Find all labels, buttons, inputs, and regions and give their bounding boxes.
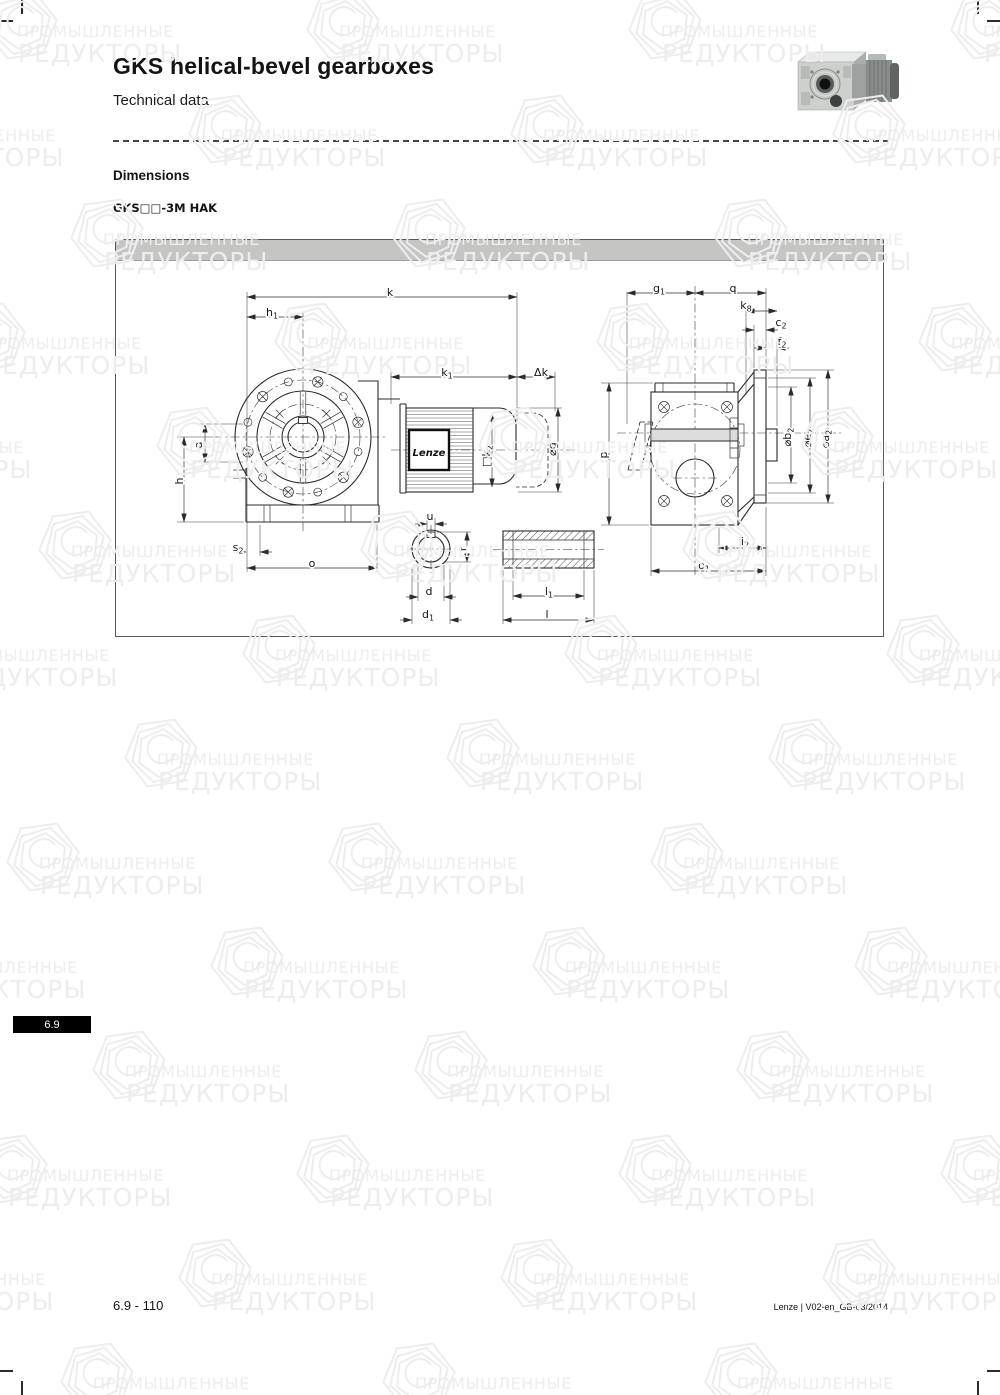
watermark-hexagon-icon [207,915,287,1003]
watermark-line1: ПРОМЫШЛЕННЫЕ [339,24,496,40]
watermark-line1: ПРОМЫШЛЕННЫЕ [415,1376,572,1392]
dim-label-k1: k1 [441,366,452,381]
crop-mark-top-right-h [987,20,1000,22]
foot-slots [264,505,351,522]
watermark-hexagon-icon [121,707,201,795]
watermark-line1: ПРОМЫШЛЕННЫЕ [7,1168,164,1184]
watermark: ПРОМЫШЛЕННЫЕРЕДУКТОРЫ [737,1376,952,1395]
crop-mark-bottom-left-v [21,1381,23,1395]
dim-label-u: u [427,510,434,523]
watermark: ПРОМЫШЛЕННЫЕРЕДУКТОРЫ [651,1168,866,1273]
watermark-line2: РЕДУКТОРЫ [244,977,408,1002]
watermark-line2: РЕДУКТОРЫ [276,665,440,690]
watermark: ПРОМЫШЛЕННЫЕРЕДУКТОРЫ [415,1376,630,1395]
gearbox-rib [801,66,810,79]
dim-label-f2: f2 [778,335,787,350]
watermark: ПРОМЫШЛЕННЫЕРЕДУКТОРЫ [39,856,254,961]
watermark: ПРОМЫШЛЕННЫЕРЕДУКТОРЫ [125,1064,340,1169]
watermark-line1: ПРОМЫШЛЕННЫЕ [243,960,400,976]
shaft-bore [820,79,831,90]
watermark-line2: РЕДУКТОРЫ [684,873,848,898]
watermark: ПРОМЫШЛЕННЫЕРЕДУКТОРЫ [93,1376,308,1395]
watermark: ПРОМЫШЛЕННЫЕРЕДУКТОРЫ [329,1168,544,1273]
watermark-line2: РЕДУКТОРЫ [866,145,1000,170]
watermark-line2: РЕДУКТОРЫ [0,457,32,482]
watermark: ПРОМЫШЛЕННЫЕРЕДУКТОРЫ [479,752,694,857]
watermark-line1: ПРОМЫШЛЕННЫЕ [479,752,636,768]
dim-label-⌀b2: ⌀b2 [781,428,796,447]
watermark-line1: ПРОМЫШЛЕННЫЕ [0,1272,46,1288]
watermark-line2: РЕДУКТОРЫ [770,1081,934,1106]
section-heading: Dimensions [113,168,190,183]
dim-label-Δk: Δk [534,366,549,379]
watermark-hexagon-icon [765,707,845,795]
watermark-line1: ПРОМЫШЛЕННЫЕ [329,1168,486,1184]
watermark-hexagon-icon [3,811,83,899]
dashed-divider [113,140,888,142]
bolt-hole [354,448,362,456]
watermark-line2: РЕДУКТОРЫ [362,873,526,898]
variant-label: GKS□□-3M HAK [113,201,217,215]
crop-mark-bottom-left-h [0,1370,13,1372]
watermark-line2: РЕДУКТОРЫ [534,1289,698,1314]
dim-label-□k2: □k2 [480,445,495,467]
watermark-line1: ПРОМЫШЛЕННЫЕ [855,1272,1000,1288]
dim-label-⌀e2: ⌀e2 [801,429,816,447]
dim-label-i2: i2 [741,535,749,550]
watermark-hexagon-icon [0,291,29,379]
watermark-line2: РЕДУКТОРЫ [222,145,386,170]
watermark: ПРОМЫШЛЕННЫЕРЕДУКТОРЫ [769,1064,984,1169]
fan-cover [473,408,516,484]
watermark-line1: ПРОМЫШЛЕННЫЕ [0,440,24,456]
watermark-hexagon-icon [57,1331,137,1395]
motor-adapter [852,64,866,98]
watermark-line1: ПРОМЫШЛЕННЫЕ [887,960,1000,976]
dim-label-⌀a2: ⌀a2 [819,430,834,448]
watermark-line1: ПРОМЫШЛЕННЫЕ [919,648,1000,664]
section-tab: 6.9 [13,1016,91,1033]
watermark-line2: РЕДУКТОРЫ [158,769,322,794]
footer-doc-code: Lenze | V02-en_GB-03/2014 [774,1302,888,1312]
watermark-line2: РЕДУКТОРЫ [0,977,86,1002]
page-title: GKS helical-bevel gearboxes [113,53,434,80]
dim-label-a: a [192,442,205,449]
watermark: ПРОМЫШЛЕННЫЕРЕДУКТОРЫ [0,1272,104,1377]
product-photo [788,46,906,118]
watermark-line2: РЕДУКТОРЫ [802,769,966,794]
gearbox-rib [843,66,851,78]
dim-label-o1: o1 [698,559,710,574]
watermark: ПРОМЫШЛЕННЫЕРЕДУКТОРЫ [211,1272,426,1377]
watermark-line2: РЕДУКТОРЫ [40,873,204,898]
output-flange-plate [754,370,766,503]
watermark-line2: РЕДУКТОРЫ [920,665,1000,690]
watermark-line2: РЕДУКТОРЫ [952,353,1000,378]
watermark-line1: ПРОМЫШЛЕННЫЕ [93,1376,250,1392]
watermark-line2: РЕДУКТОРЫ [448,1081,612,1106]
crop-mark-bottom-right-h [987,1370,1000,1372]
watermark-line1: ПРОМЫШЛЕННЫЕ [0,648,110,664]
bolt-dot [810,95,813,98]
gearbox-rib [801,92,810,105]
watermark: ПРОМЫШЛЕННЫЕРЕДУКТОРЫ [157,752,372,857]
dim-label-l: l [545,608,548,621]
watermark-hexagon-icon [851,915,931,1003]
watermark: ПРОМЫШЛЕННЫЕРЕДУКТОРЫ [597,648,812,753]
watermark-line1: ПРОМЫШЛЕННЫЕ [651,1168,808,1184]
watermark: ПРОМЫШЛЕННЫЕРЕДУКТОРЫ [0,752,50,857]
watermark-hexagon-icon [915,291,995,379]
watermark: ПРОМЫШЛЕННЫЕРЕДУКТОРЫ [0,1064,18,1169]
watermark-hexagon-icon [497,1227,577,1315]
watermark: ПРОМЫШЛЕННЫЕРЕДУКТОРЫ [973,1168,1000,1273]
watermark: ПРОМЫШЛЕННЫЕРЕДУКТОРЫ [275,648,490,753]
watermark-line1: ПРОМЫШЛЕННЫЕ [0,960,78,976]
dim-label-k8: k8 [740,299,751,314]
watermark-line1: ПРОМЫШЛЕННЫЕ [39,856,196,872]
dim-label-h: h [173,477,186,484]
dim-label-d1: d1 [422,608,434,623]
footer-page-number: 6.9 - 110 [113,1298,163,1313]
centering-spigot [766,429,777,461]
watermark-line1: ПРОМЫШЛЕННЫЕ [565,960,722,976]
watermark-hexagon-icon [175,1227,255,1315]
plug-hole [830,95,842,107]
watermark-line1: ПРОМЫШЛЕННЫЕ [973,1168,1000,1184]
dim-label-s2: s2 [233,541,244,556]
watermark-hexagon-icon [625,0,705,67]
watermark-hexagon-icon [411,1019,491,1107]
motor-brand-label: Lenze [413,448,446,459]
watermark: ПРОМЫШЛЕННЫЕРЕДУКТОРЫ [221,128,436,233]
bolt-dot [836,70,839,73]
crop-mark-top-left-v [21,0,23,14]
watermark-line1: ПРОМЫШЛЕННЫЕ [769,1064,926,1080]
watermark-line2: РЕДУКТОРЫ [598,665,762,690]
watermark: ПРОМЫШЛЕННЫЕРЕДУКТОРЫ [801,752,1000,857]
watermark-line1: ПРОМЫШЛЕННЫЕ [801,752,958,768]
watermark: ПРОМЫШЛЕННЫЕРЕДУКТОРЫ [0,128,114,233]
watermark-line2: РЕДУКТОРЫ [0,1289,54,1314]
dim-label-o: o [309,557,316,570]
watermark-hexagon-icon [325,811,405,899]
dim-label-t: t [457,546,470,551]
watermark: ПРОМЫШЛЕННЫЕРЕДУКТОРЫ [919,648,1000,753]
watermark-line2: РЕДУКТОРЫ [974,1185,1000,1210]
watermark-line2: РЕДУКТОРЫ [566,977,730,1002]
watermark-hexagon-icon [733,1019,813,1107]
crop-mark-top-left-h [0,20,13,22]
watermark-hexagon-icon [529,915,609,1003]
watermark-line1: ПРОМЫШЛЕННЫЕ [983,24,1000,40]
dim-label-g1: g1 [653,282,665,297]
watermark-hexagon-icon [443,707,523,795]
watermark: ПРОМЫШЛЕННЫЕРЕДУКТОРЫ [361,856,576,961]
watermark-line1: ПРОМЫШЛЕННЫЕ [661,24,818,40]
dim-label-h1: h1 [266,306,278,321]
watermark-hexagon-icon [883,603,963,691]
catalog-page: GKS helical-bevel gearboxes Technical da… [0,0,1000,1395]
watermark-line1: ПРОМЫШЛЕННЫЕ [157,752,314,768]
watermark-hexagon-icon [35,499,115,587]
watermark: ПРОМЫШЛЕННЫЕРЕДУКТОРЫ [983,24,1000,129]
watermark-line2: РЕДУКТОРЫ [8,1185,172,1210]
watermark-line2: РЕДУКТОРЫ [652,1185,816,1210]
hollow-shaft-sleeve [493,531,604,568]
bolt-hole [259,473,267,481]
watermark-line2: РЕДУКТОРЫ [984,41,1000,66]
crop-mark-top-right-v [977,0,979,14]
drawing-titlebar [116,240,883,261]
section-tab-label: 6.9 [44,1019,59,1031]
housing-corner-bolts [659,402,733,507]
watermark-line1: ПРОМЫШЛЕННЫЕ [275,648,432,664]
motor-end-cap [890,63,899,99]
watermark-line2: РЕДУКТОРЫ [0,145,64,170]
watermark-line2: РЕДУКТОРЫ [544,145,708,170]
watermark: ПРОМЫШЛЕННЫЕРЕДУКТОРЫ [865,128,1000,233]
watermark-line1: ПРОМЫШЛЕННЫЕ [125,1064,282,1080]
watermark: ПРОМЫШЛЕННЫЕРЕДУКТОРЫ [543,128,758,233]
dim-label-p: p [597,451,610,458]
watermark-line1: ПРОМЫШЛЕННЫЕ [737,1376,894,1392]
watermark: ПРОМЫШЛЕННЫЕРЕДУКТОРЫ [951,336,1000,441]
watermark-line1: ПРОМЫШЛЕННЫЕ [361,856,518,872]
watermark: ПРОМЫШЛЕННЫЕРЕДУКТОРЫ [533,1272,748,1377]
watermark-hexagon-icon [615,1123,695,1211]
watermark-line1: ПРОМЫШЛЕННЫЕ [951,336,1000,352]
bolt-hole [339,393,347,401]
watermark-hexagon-icon [701,1331,781,1395]
watermark-hexagon-icon [379,1331,459,1395]
watermark-hexagon-icon [89,1019,169,1107]
technical-drawing: kh1k1Δkahs2outdd1l1l□k2⌀gg1qk8c2f2p⌀b2⌀e… [116,261,883,636]
watermark-line1: ПРОМЫШЛЕННЫЕ [0,128,56,144]
watermark-line1: ПРОМЫШЛЕННЫЕ [17,24,174,40]
drawing-panel: kh1k1Δkahs2outdd1l1l□k2⌀gg1qk8c2f2p⌀b2⌀e… [115,239,884,637]
watermark-hexagon-icon [947,0,1000,67]
dim-label-l1: l1 [545,585,553,600]
watermark-hexagon-icon [293,1123,373,1211]
watermark: ПРОМЫШЛЕННЫЕРЕДУКТОРЫ [855,1272,1000,1377]
watermark-line1: ПРОМЫШЛЕННЫЕ [211,1272,368,1288]
watermark-hexagon-icon [647,811,727,899]
dim-label-d: d [426,585,433,598]
watermark-hexagon-icon [507,83,587,171]
watermark: ПРОМЫШЛЕННЫЕРЕДУКТОРЫ [565,960,780,1065]
watermark-line2: РЕДУКТОРЫ [212,1289,376,1314]
watermark: ПРОМЫШЛЕННЫЕРЕДУКТОРЫ [243,960,458,1065]
watermark: ПРОМЫШЛЕННЫЕРЕДУКТОРЫ [7,1168,222,1273]
watermark-line2: РЕДУКТОРЫ [126,1081,290,1106]
bolt-dot [810,70,813,73]
watermark: ПРОМЫШЛЕННЫЕРЕДУКТОРЫ [0,440,82,545]
gearbox-top-face [798,52,866,62]
page-subtitle: Technical data [113,92,209,109]
dim-label-k: k [387,286,394,299]
watermark-hexagon-icon [0,1123,51,1211]
dimension-lines [184,293,828,620]
watermark-line1: ПРОМЫШЛЕННЫЕ [597,648,754,664]
watermark-line1: ПРОМЫШЛЕННЫЕ [533,1272,690,1288]
dim-label-q: q [730,282,737,295]
dim-label-c2: c2 [775,316,786,331]
watermark-hexagon-icon [937,1123,1000,1211]
watermark: ПРОМЫШЛЕННЫЕРЕДУКТОРЫ [447,1064,662,1169]
watermark-line1: ПРОМЫШЛЕННЫЕ [683,856,840,872]
watermark-line2: РЕДУКТОРЫ [330,1185,494,1210]
watermark: ПРОМЫШЛЕННЫЕРЕДУКТОРЫ [683,856,898,961]
watermark-line1: ПРОМЫШЛЕННЫЕ [447,1064,604,1080]
watermark-line2: РЕДУКТОРЫ [0,665,118,690]
crop-mark-bottom-right-v [977,1381,979,1395]
watermark-line2: РЕДУКТОРЫ [888,977,1000,1002]
front-view [213,312,579,532]
watermark: ПРОМЫШЛЕННЫЕРЕДУКТОРЫ [0,648,168,753]
dim-label-⌀g: ⌀g [546,442,559,456]
watermark-line2: РЕДУКТОРЫ [480,769,644,794]
watermark: ПРОМЫШЛЕННЫЕРЕДУКТОРЫ [887,960,1000,1065]
watermark-hexagon-icon [0,0,61,67]
keyway [299,418,308,424]
watermark: ПРОМЫШЛЕННЫЕРЕДУКТОРЫ [0,960,136,1065]
